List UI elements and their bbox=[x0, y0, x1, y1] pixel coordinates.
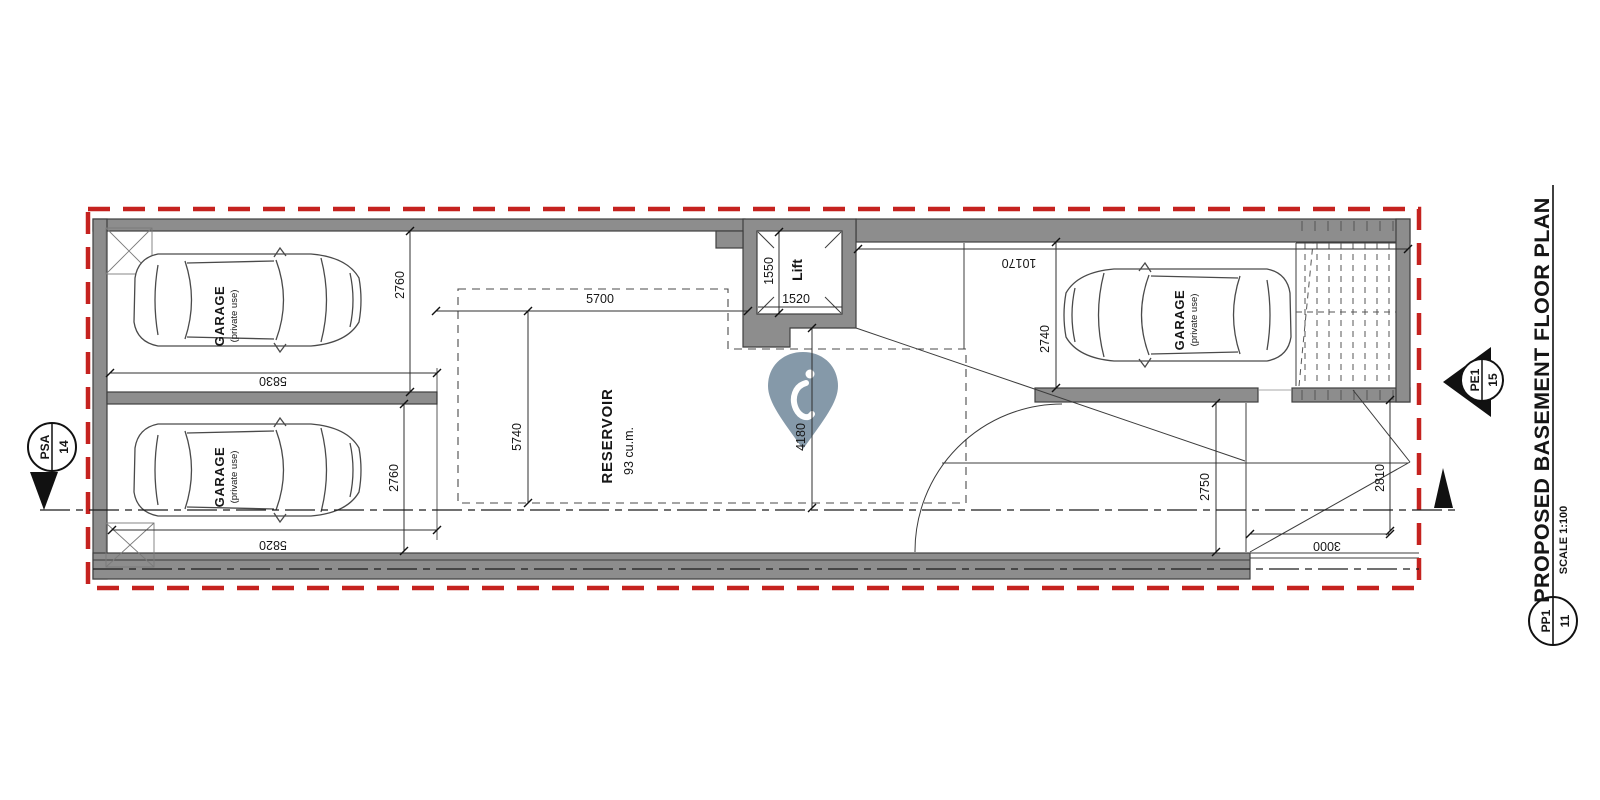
svg-text:2740: 2740 bbox=[1038, 325, 1052, 353]
svg-text:2760: 2760 bbox=[393, 271, 407, 299]
svg-text:2810: 2810 bbox=[1373, 464, 1387, 492]
svg-text:14: 14 bbox=[57, 440, 71, 454]
pin-glyph-dot bbox=[806, 370, 815, 379]
svg-text:PE1: PE1 bbox=[1468, 368, 1482, 391]
svg-text:5830: 5830 bbox=[259, 374, 287, 388]
wall-top-left bbox=[93, 219, 745, 231]
svg-text:PP1: PP1 bbox=[1539, 609, 1553, 632]
svg-text:15: 15 bbox=[1486, 373, 1500, 387]
wall-right bbox=[1396, 219, 1410, 402]
svg-text:11: 11 bbox=[1558, 614, 1572, 627]
svg-text:5700: 5700 bbox=[586, 292, 614, 306]
svg-text:GARAGE: GARAGE bbox=[212, 286, 227, 347]
wall-bottom bbox=[93, 553, 1250, 579]
svg-text:2760: 2760 bbox=[387, 464, 401, 492]
svg-text:5820: 5820 bbox=[259, 538, 287, 552]
svg-text:PSA: PSA bbox=[38, 434, 52, 459]
svg-text:3000: 3000 bbox=[1313, 539, 1341, 553]
svg-text:4180: 4180 bbox=[794, 423, 808, 451]
svg-text:2750: 2750 bbox=[1198, 473, 1212, 501]
label-garage-bottom-left: GARAGE (private use) bbox=[212, 447, 240, 508]
car-garage-top-left bbox=[134, 248, 361, 352]
svg-text:(private use): (private use) bbox=[229, 290, 240, 343]
car-garage-bottom-left bbox=[134, 418, 361, 522]
drawing-sheet: Lift bbox=[0, 0, 1600, 800]
wall-garage-right-bottom bbox=[1035, 388, 1258, 402]
label-garage-right: GARAGE (private use) bbox=[1172, 290, 1200, 351]
wall-top-right bbox=[856, 219, 1410, 242]
wall-garage-divider bbox=[107, 392, 437, 404]
svg-text:1550: 1550 bbox=[762, 257, 776, 285]
svg-text:5740: 5740 bbox=[510, 423, 524, 451]
svg-text:GARAGE: GARAGE bbox=[1172, 290, 1187, 351]
wall-lift-stub bbox=[716, 231, 743, 248]
svg-text:GARAGE: GARAGE bbox=[212, 447, 227, 508]
drawing-title: PROPOSED BASEMENT FLOOR PLAN bbox=[1530, 197, 1554, 602]
svg-text:(private use): (private use) bbox=[229, 451, 240, 504]
svg-text:1520: 1520 bbox=[782, 292, 810, 306]
label-garage-top-left: GARAGE (private use) bbox=[212, 286, 240, 347]
lift-label: Lift bbox=[789, 259, 805, 281]
wall-left bbox=[93, 219, 107, 579]
drawing-scale: SCALE 1:100 bbox=[1558, 506, 1570, 574]
svg-text:93 cu.m.: 93 cu.m. bbox=[622, 427, 636, 475]
floor-plan-svg: Lift bbox=[0, 0, 1600, 800]
svg-text:(private use): (private use) bbox=[1189, 294, 1200, 347]
svg-text:10170: 10170 bbox=[1002, 256, 1037, 270]
wall-stair-bottom bbox=[1292, 388, 1410, 402]
svg-text:RESERVOIR: RESERVOIR bbox=[599, 388, 616, 483]
